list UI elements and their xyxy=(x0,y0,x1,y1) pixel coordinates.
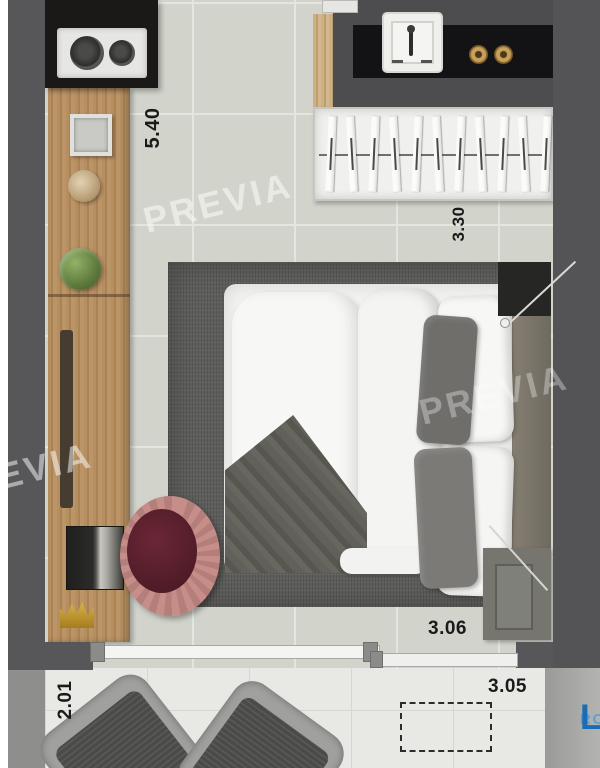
hanger-icon xyxy=(411,116,422,192)
gray-pillow-bottom xyxy=(413,447,478,590)
dimension-label-2-01: 2.01 xyxy=(34,668,98,732)
hanger-icon xyxy=(497,116,508,192)
hanger-icon xyxy=(454,116,465,192)
decor-bowl xyxy=(68,170,100,202)
vanity-bowl-right xyxy=(494,45,513,64)
duvet-foot-spill xyxy=(340,548,428,574)
dimension-label-3-30: 3.30 xyxy=(427,192,491,256)
laptop xyxy=(66,526,124,590)
wardrobe-closet xyxy=(313,107,553,201)
floor-plan: 5.40 3.30 2.01 3.06 3.05 PREVIA PREVIA P… xyxy=(0,0,600,768)
sliding-door-panel-left xyxy=(92,645,380,659)
burner-small-icon xyxy=(109,40,135,66)
arc-lamp-upper-bulb xyxy=(500,318,510,328)
hanger-icon xyxy=(325,116,336,192)
gray-pillow-top xyxy=(416,314,479,445)
wall-stub-left xyxy=(45,642,93,670)
wall-stub-right xyxy=(516,642,553,668)
nightstand-lower-top xyxy=(495,564,533,630)
counter-groove xyxy=(60,330,73,508)
hanger-icon xyxy=(540,116,551,192)
sliding-door-panel-right xyxy=(372,653,518,667)
faucet-icon xyxy=(409,30,413,56)
wood-partition xyxy=(313,14,333,107)
optional-area-dashed-outline xyxy=(400,702,492,752)
counter-seam xyxy=(48,294,130,297)
vanity-bowl-left xyxy=(469,45,488,64)
faucet-base xyxy=(407,25,415,33)
brand-name-bottom: LEARDI xyxy=(580,700,600,735)
dimension-label-5-40: 5.40 xyxy=(121,96,185,160)
burner-large-icon xyxy=(70,36,104,70)
wall-left xyxy=(8,0,45,670)
potted-plant xyxy=(59,248,101,290)
dimension-label-3-05: 3.05 xyxy=(488,676,527,698)
desk-chair-seat xyxy=(127,509,197,593)
cropped-fixture xyxy=(322,0,358,13)
wall-right xyxy=(553,0,600,668)
dimension-label-3-06: 3.06 xyxy=(428,618,467,640)
door-handle xyxy=(370,651,383,668)
kitchen-sink-square xyxy=(70,114,112,156)
door-handle xyxy=(90,642,105,662)
sink-detail-right xyxy=(421,60,432,63)
sink-detail-left xyxy=(392,60,403,63)
hanger-icon xyxy=(368,116,379,192)
